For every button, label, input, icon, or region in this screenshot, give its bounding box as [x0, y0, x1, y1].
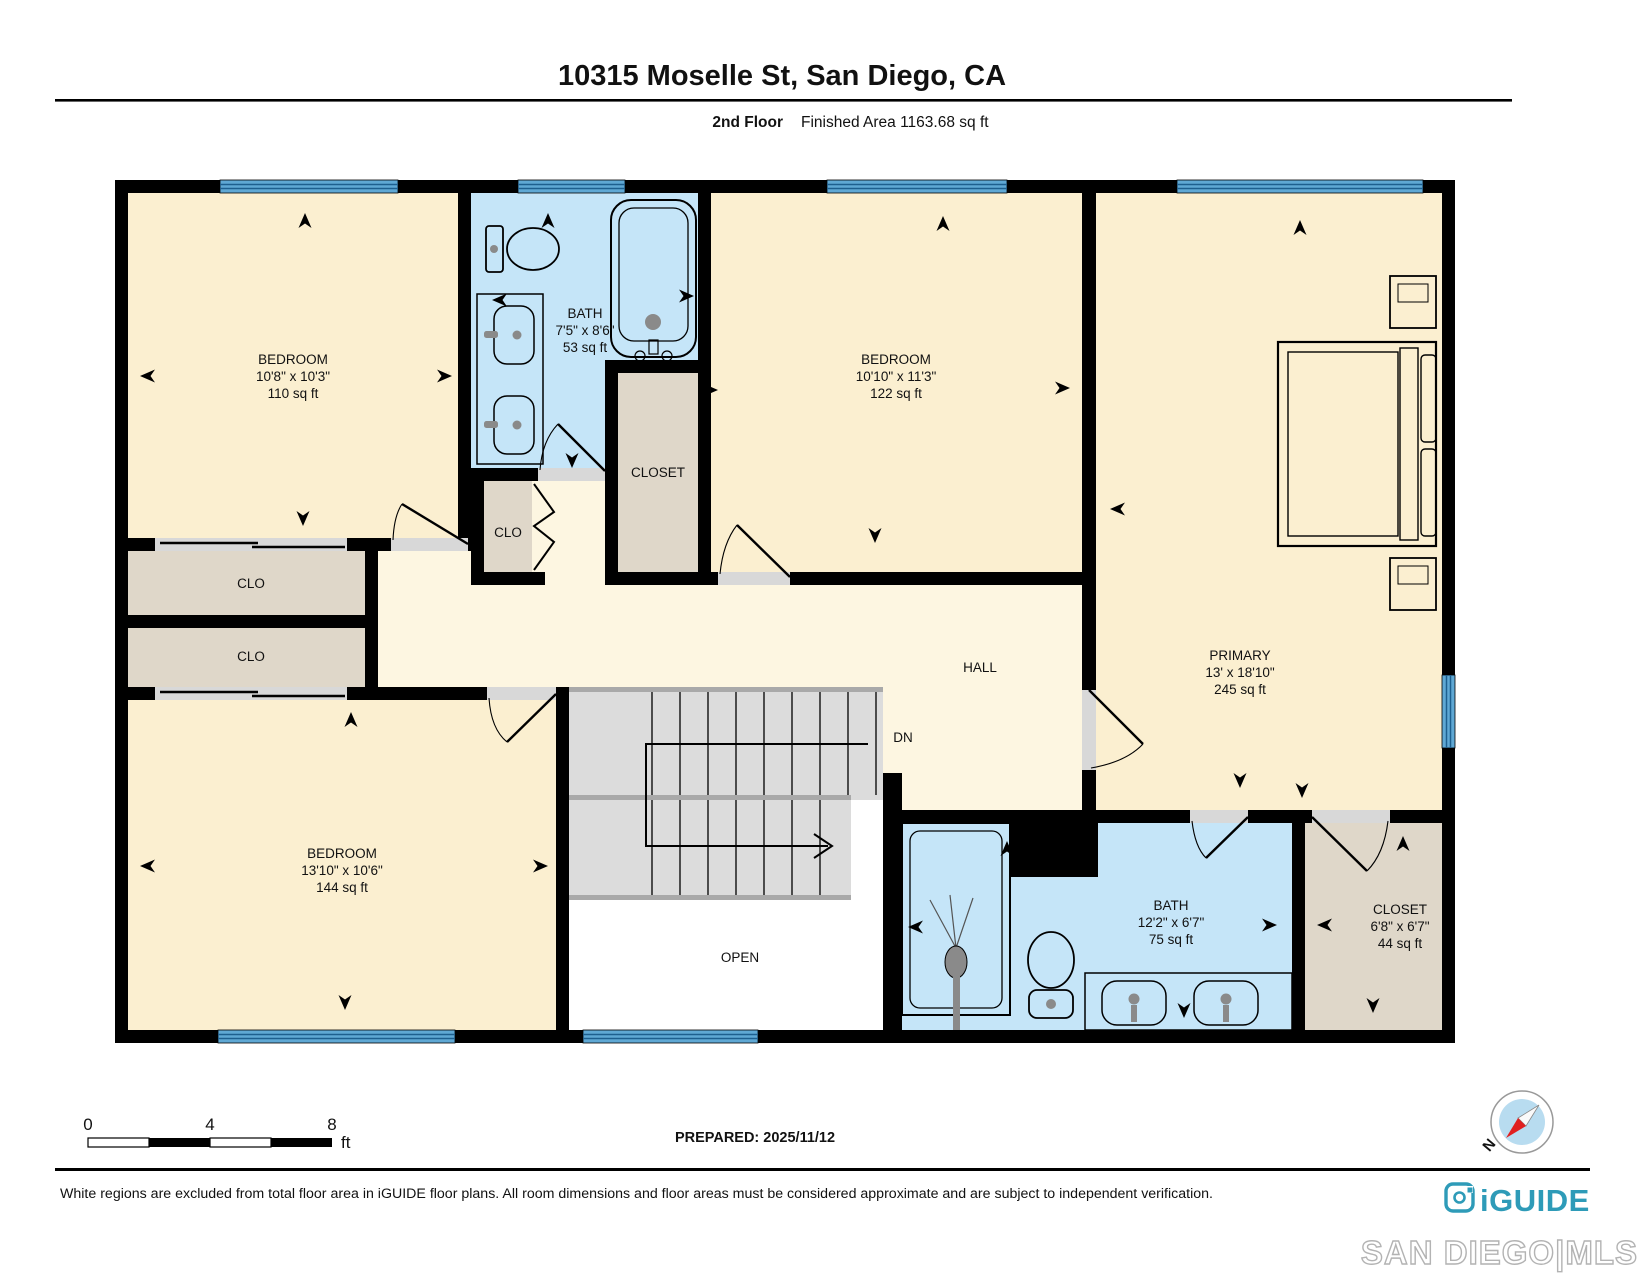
floor-plan: BEDROOM 10'8" x 10'3" 110 sq ft BATH 7'5…: [115, 180, 1455, 1043]
footer: White regions are excluded from total fl…: [55, 1168, 1638, 1271]
window: [220, 180, 398, 193]
floor-label: 2nd Floor: [712, 114, 783, 131]
header: 10315 Moselle St, San Diego, CA 2nd Floo…: [55, 60, 1512, 131]
room-label: OPEN: [721, 950, 759, 965]
room-label: BEDROOM: [861, 352, 931, 367]
window: [1177, 180, 1423, 193]
scale-end: 8: [327, 1115, 336, 1134]
window: [583, 1030, 758, 1043]
window: [1442, 675, 1455, 748]
room-area: 44 sq ft: [1378, 936, 1423, 951]
room-dims: 10'10" x 11'3": [856, 369, 937, 384]
room-label: BEDROOM: [258, 352, 328, 367]
page-title: 10315 Moselle St, San Diego, CA: [558, 60, 1006, 92]
sliding-door-clo-lower: [155, 687, 347, 700]
room-area: 53 sq ft: [563, 340, 608, 355]
room-area: 122 sq ft: [870, 386, 922, 401]
disclaimer-text: White regions are excluded from total fl…: [60, 1186, 1213, 1202]
room-dims: 13' x 18'10": [1205, 665, 1274, 680]
room-area: 75 sq ft: [1149, 932, 1194, 947]
window: [827, 180, 1007, 193]
room-label: CLOSET: [631, 465, 685, 480]
room-label: BEDROOM: [307, 846, 377, 861]
compass-icon: N: [1479, 1091, 1553, 1155]
room-dims: 12'2" x 6'7": [1138, 915, 1205, 930]
room-area: 245 sq ft: [1214, 682, 1266, 697]
scale-mid: 4: [205, 1115, 214, 1134]
room-label: BATH: [567, 306, 602, 321]
room-label: HALL: [963, 660, 997, 675]
room-label: BATH: [1153, 898, 1188, 913]
mls-watermark: SAN DIEGO|MLS: [1361, 1234, 1638, 1271]
room-dims: 13'10" x 10'6": [301, 863, 383, 878]
room-dims: 6'8" x 6'7": [1370, 919, 1429, 934]
scale-unit: ft: [341, 1133, 351, 1152]
staircase: [569, 687, 883, 1030]
room-label: CLO: [237, 649, 265, 664]
room-label: CLO: [237, 576, 265, 591]
window: [518, 180, 625, 193]
header-divider: [55, 99, 1512, 102]
floorplan-page: 10315 Moselle St, San Diego, CA 2nd Floo…: [0, 0, 1650, 1275]
iguide-logo-text: iGUIDE: [1480, 1183, 1590, 1218]
sliding-door-clo-upper: [155, 538, 347, 551]
room-dims: 10'8" x 10'3": [256, 369, 330, 384]
room-area: 144 sq ft: [316, 880, 368, 895]
finished-area-label: Finished Area 1163.68 sq ft: [801, 114, 989, 131]
iguide-logo: iGUIDE: [1446, 1183, 1590, 1218]
room-dims: 7'5" x 8'6": [555, 323, 614, 338]
room-label: CLO: [494, 525, 522, 540]
scale-start: 0: [83, 1115, 92, 1134]
room-label: CLOSET: [1373, 902, 1427, 917]
window: [218, 1030, 455, 1043]
room-label: PRIMARY: [1209, 648, 1270, 663]
scale-bar: 0 4 8 ft: [83, 1115, 350, 1152]
room-area: 110 sq ft: [268, 386, 319, 401]
footer-divider: [55, 1168, 1590, 1171]
stairs-dn-label: DN: [893, 730, 913, 745]
prepared-date: PREPARED: 2025/11/12: [675, 1130, 835, 1146]
